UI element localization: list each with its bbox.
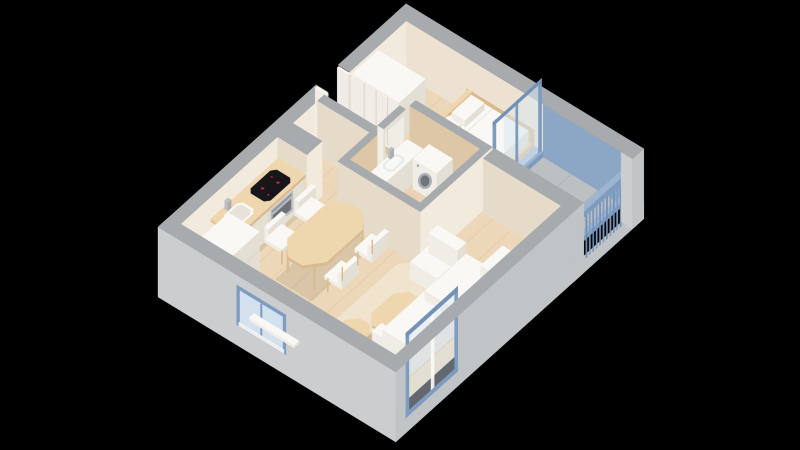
floorplan-3d-render: [0, 0, 800, 450]
apartment-floorplan-svg: [0, 0, 800, 450]
